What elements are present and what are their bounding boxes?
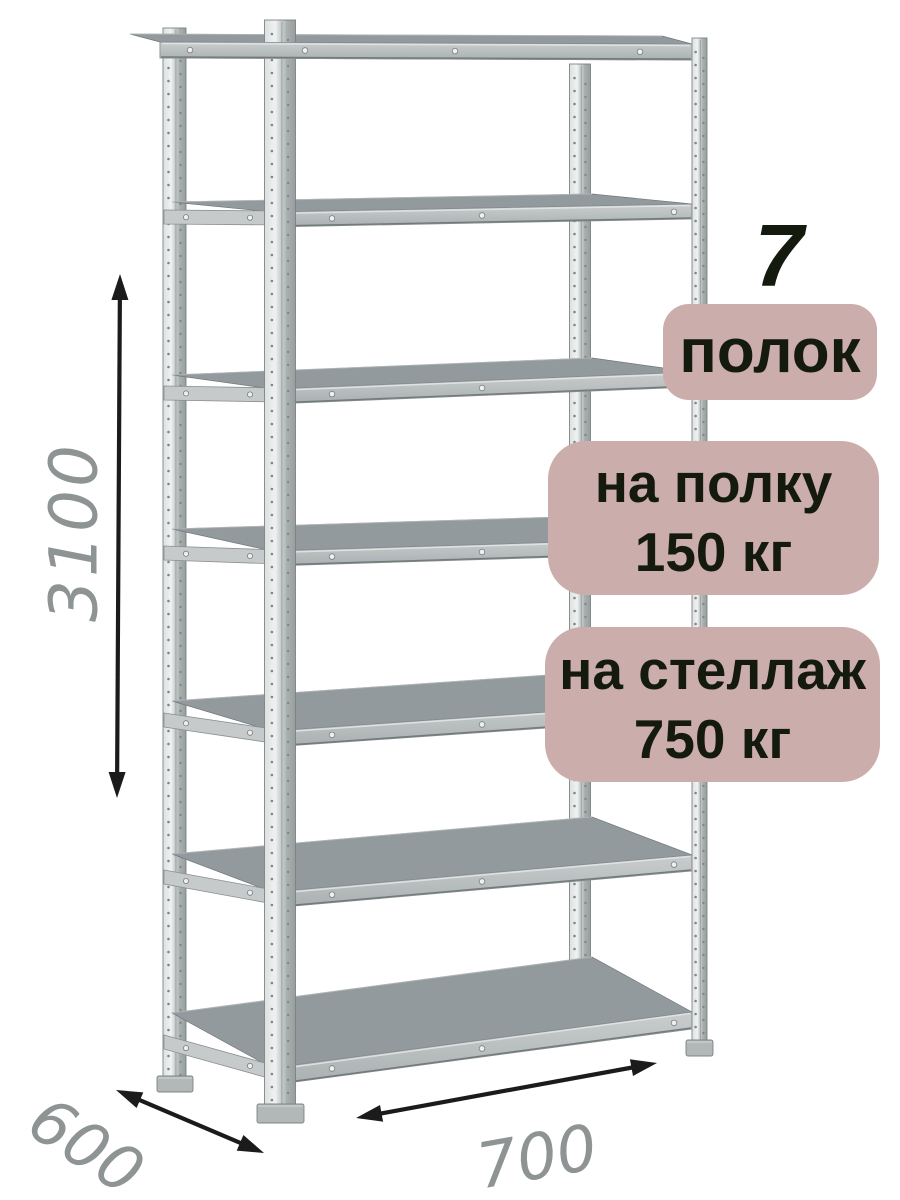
shelf-6: [164, 817, 692, 908]
shelf-count-number: 7: [704, 212, 854, 300]
shelving-rack-illustration: 3100 600 700: [0, 0, 900, 1200]
per-shelf-load-line2: 150 кг: [635, 518, 792, 587]
shelf-count-badge: полок: [663, 304, 877, 400]
per-shelf-load-badge: на полку 150 кг: [548, 441, 879, 595]
per-rack-load-line1: на стеллаж: [559, 636, 866, 705]
foot-front-left: [257, 1104, 304, 1123]
per-shelf-load-line1: на полку: [595, 449, 833, 518]
height-dimension-label: 3100: [36, 442, 113, 622]
post-front-left: [265, 20, 296, 1112]
product-image: 3100 600 700 7 полок на полку 150 кг на …: [0, 0, 900, 1200]
shelf-7: [164, 957, 692, 1085]
per-rack-load-line2: 750 кг: [634, 705, 791, 774]
width-dimension-label: 700: [471, 1111, 602, 1200]
per-rack-load-badge: на стеллаж 750 кг: [545, 627, 880, 782]
shelf-3: [164, 358, 692, 404]
top-beam-front: [160, 42, 692, 60]
shelf-2: [164, 194, 692, 227]
shelf-count-badge-label: полок: [679, 313, 860, 391]
width-dimension-arrow: [356, 1059, 657, 1121]
